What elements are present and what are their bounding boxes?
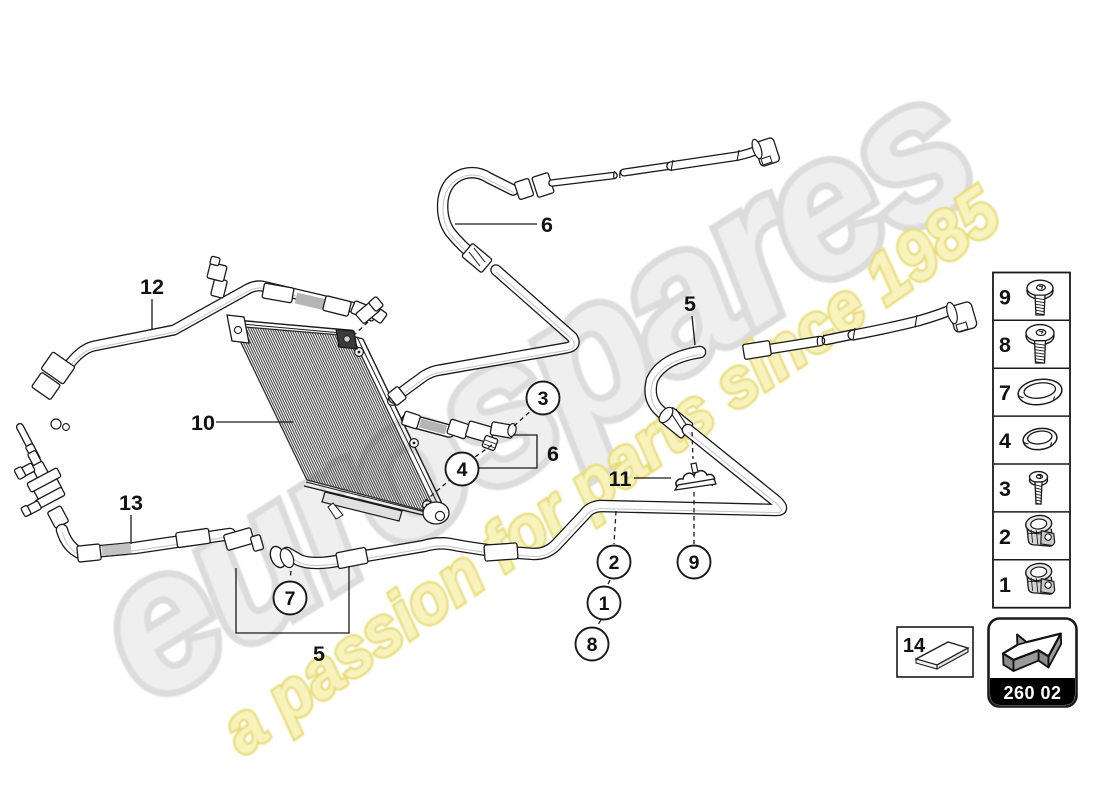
svg-text:10: 10	[191, 411, 215, 435]
svg-text:3: 3	[538, 388, 549, 410]
svg-text:6: 6	[547, 442, 559, 466]
svg-text:9: 9	[689, 552, 700, 574]
svg-text:4: 4	[457, 459, 468, 481]
svg-text:14: 14	[903, 635, 926, 657]
svg-text:6: 6	[541, 213, 553, 237]
svg-text:13: 13	[119, 491, 143, 515]
svg-text:8: 8	[999, 333, 1011, 357]
svg-text:5: 5	[684, 292, 696, 316]
svg-text:2: 2	[609, 552, 620, 574]
svg-text:260 02: 260 02	[1003, 683, 1061, 703]
svg-text:11: 11	[609, 467, 632, 491]
svg-text:1: 1	[999, 573, 1011, 597]
svg-text:1: 1	[599, 593, 610, 615]
svg-text:4: 4	[999, 429, 1011, 453]
svg-text:9: 9	[999, 285, 1011, 309]
svg-text:2: 2	[999, 525, 1011, 549]
svg-text:5: 5	[313, 642, 325, 666]
svg-text:8: 8	[587, 634, 598, 656]
svg-text:12: 12	[140, 275, 164, 299]
svg-text:3: 3	[999, 477, 1011, 501]
svg-text:7: 7	[285, 588, 296, 610]
svg-text:7: 7	[999, 381, 1011, 405]
